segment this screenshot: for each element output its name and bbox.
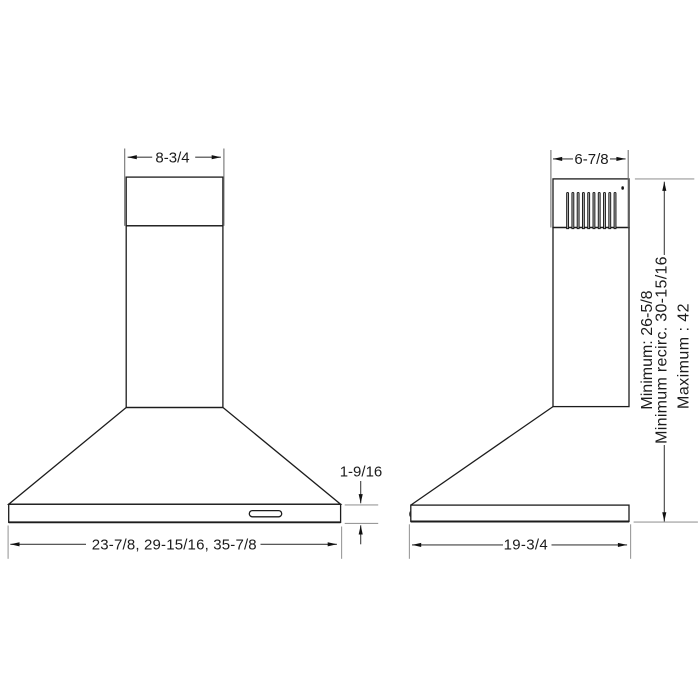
- svg-text:Minimum recirc. 30-15/16: Minimum recirc. 30-15/16: [654, 256, 671, 444]
- svg-text:8-3/4: 8-3/4: [155, 150, 189, 167]
- svg-text:23-7/8, 29-15/16, 35-7/8: 23-7/8, 29-15/16, 35-7/8: [92, 537, 257, 554]
- svg-text:19-3/4: 19-3/4: [504, 536, 548, 553]
- svg-text:1-9/16: 1-9/16: [340, 463, 383, 480]
- svg-text:6-7/8: 6-7/8: [574, 151, 608, 168]
- svg-text:Maximum : 42: Maximum : 42: [675, 303, 692, 409]
